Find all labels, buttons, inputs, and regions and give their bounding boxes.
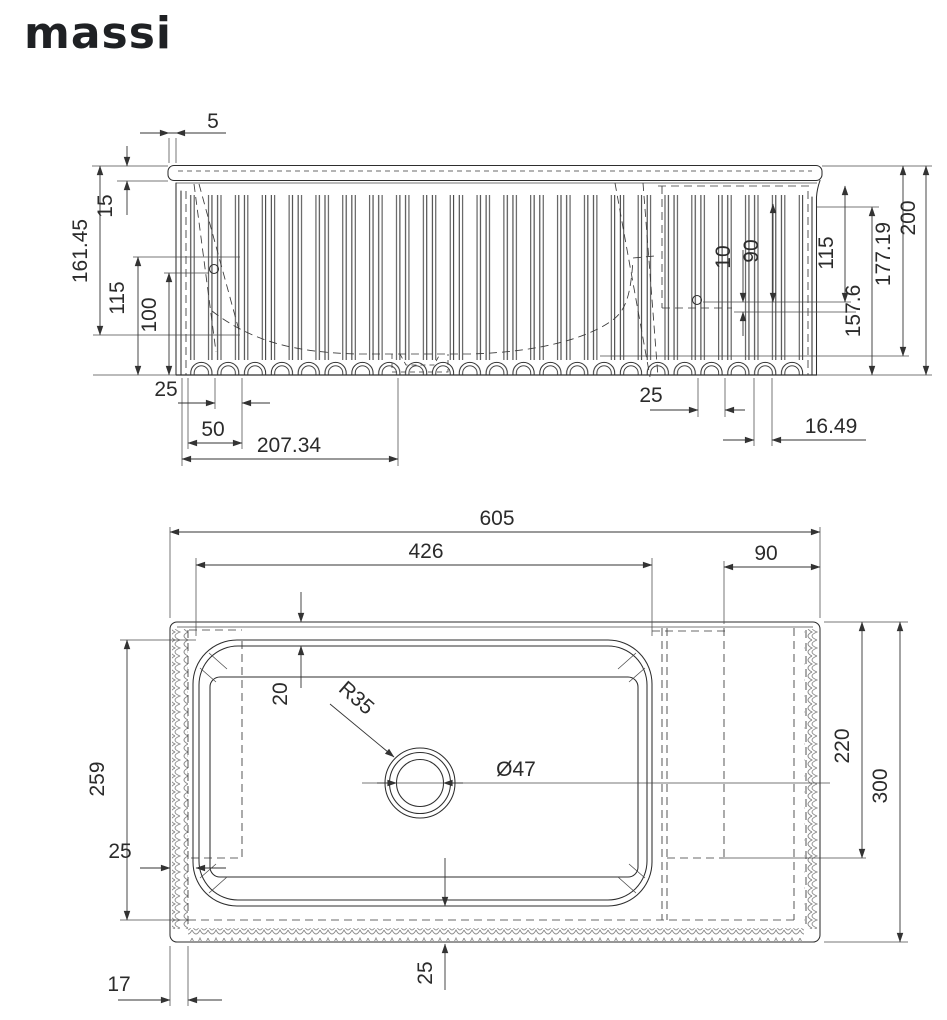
basin-floor [210, 677, 638, 877]
plan-outer-outline [170, 622, 820, 942]
dim-wall-17: 17 [107, 973, 130, 996]
dim-pitch-25-left: 25 [154, 378, 177, 401]
dim-rim-overhang: 5 [207, 110, 219, 133]
dim-left-100: 100 [138, 297, 161, 332]
dim-drain-d47: Ø47 [496, 758, 536, 781]
dim-drain-offset: 207.34 [257, 434, 322, 457]
dim-pitch-50: 50 [201, 418, 224, 441]
front-elevation-view: 5 15 161.45 115 100 25 50 207.34 25 16.4… [69, 110, 932, 466]
basin-rim-outer [193, 640, 652, 906]
dim-right-115: 115 [815, 236, 838, 269]
basin-corner-facets [200, 653, 645, 893]
plan-view: 605 426 90 20 R35 Ø47 259 25 220 300 25 … [86, 507, 908, 1006]
rim-outline [168, 166, 822, 181]
technical-drawing-canvas: 5 15 161.45 115 100 25 50 207.34 25 16.4… [0, 0, 947, 1020]
dim-total-300: 300 [869, 768, 892, 803]
dim-height-161: 161.45 [69, 219, 92, 283]
dim-hole-90: 90 [740, 239, 763, 262]
fluted-front-texture [188, 195, 806, 375]
dim-right-177: 177.19 [872, 222, 895, 286]
dim-wall-25-bottom: 25 [414, 961, 437, 984]
dim-wall-25-left: 25 [108, 840, 131, 863]
dim-left-115: 115 [106, 281, 129, 314]
drawing-page: massi [0, 0, 947, 1020]
dim-deck-90: 90 [754, 542, 777, 565]
dim-basin-426: 426 [408, 540, 443, 563]
dim-total-200: 200 [897, 200, 920, 235]
dim-rim-height: 15 [94, 194, 117, 217]
wall-texture-left [172, 629, 188, 929]
dim-hole-10: 10 [712, 245, 735, 268]
dim-inset-20: 20 [269, 682, 292, 705]
wall-texture-bottom [188, 928, 804, 941]
dim-right-157: 157.6 [842, 285, 865, 338]
dim-pitch-25-right: 25 [639, 384, 662, 407]
dim-basin-259: 259 [86, 761, 109, 796]
dim-deck-220: 220 [831, 728, 854, 763]
dim-total-605: 605 [479, 507, 514, 530]
basin-rim-inner [199, 646, 647, 900]
dim-edge-16: 16.49 [805, 415, 858, 438]
